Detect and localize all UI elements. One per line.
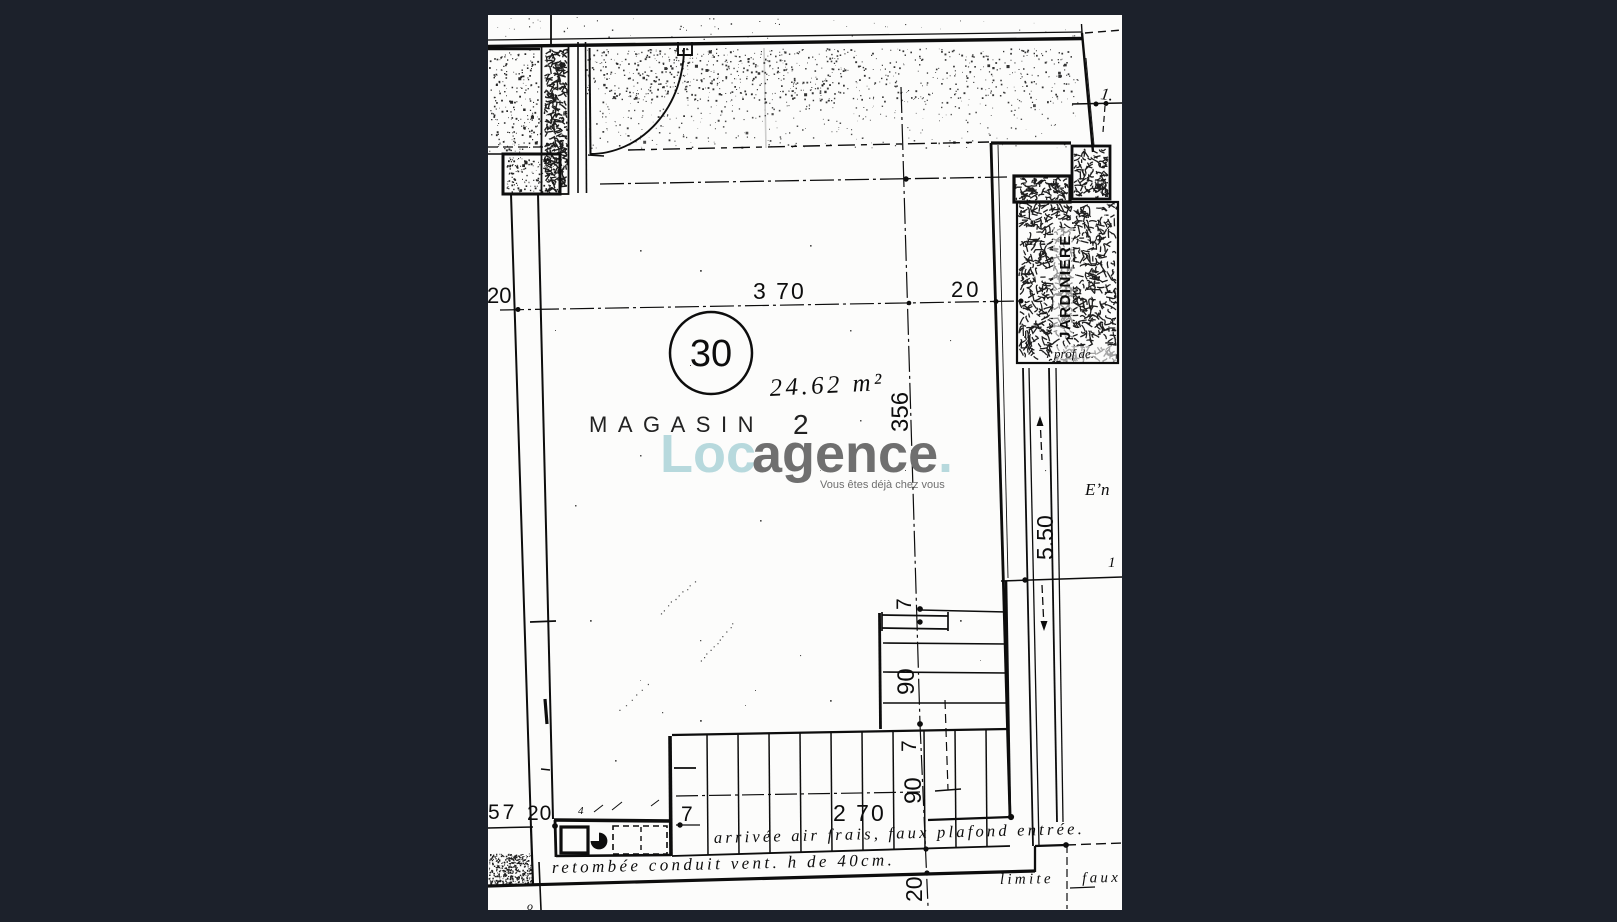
svg-text:30: 30 — [690, 333, 732, 375]
svg-text:20: 20 — [951, 277, 981, 302]
svg-text:prof de.: prof de. — [1053, 346, 1094, 361]
svg-text:.: . — [938, 424, 953, 484]
svg-text:JARDINIERE: JARDINIERE — [1057, 234, 1074, 340]
svg-text:arrivée air frais, faux plafon: arrivée air frais, faux plafond entrée. — [714, 819, 1082, 847]
svg-text:57: 57 — [488, 801, 517, 824]
svg-text:90: 90 — [900, 777, 927, 804]
svg-text:20: 20 — [901, 876, 927, 902]
svg-text:agence: agence — [752, 424, 938, 484]
svg-text:1.: 1. — [1099, 84, 1114, 105]
svg-text:Vous êtes déjà chez vous: Vous êtes déjà chez vous — [820, 479, 945, 491]
svg-text:20: 20 — [527, 802, 552, 825]
svg-text:20: 20 — [488, 283, 511, 308]
svg-text:Eʼn: Eʼn — [1084, 480, 1110, 499]
svg-text:o: o — [527, 899, 533, 910]
svg-text:7: 7 — [898, 740, 921, 752]
svg-text:4: 4 — [578, 805, 584, 817]
svg-text:5.50: 5.50 — [1032, 515, 1058, 560]
svg-text:7: 7 — [681, 803, 693, 826]
svg-text:1: 1 — [1108, 555, 1116, 571]
svg-text:Loc: Loc — [660, 424, 756, 484]
svg-text:2 70: 2 70 — [833, 800, 886, 826]
svg-text:90: 90 — [893, 668, 920, 695]
svg-text:24.62 m²: 24.62 m² — [769, 369, 883, 402]
svg-text:7: 7 — [893, 598, 916, 610]
svg-text:3 70: 3 70 — [753, 278, 806, 304]
